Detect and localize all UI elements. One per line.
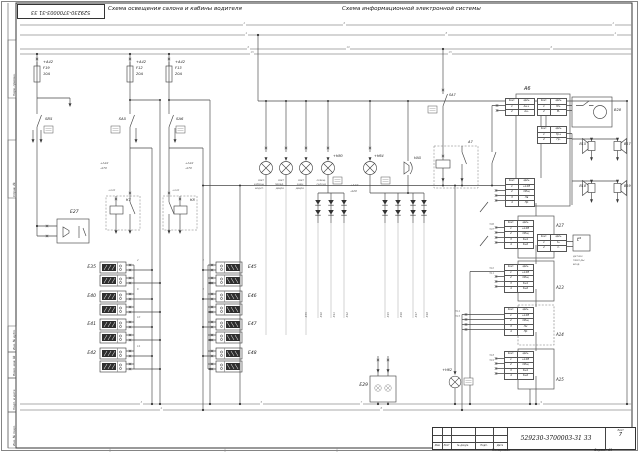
wire-num: 507 bbox=[489, 229, 494, 231]
stub-num: 4 bbox=[202, 260, 204, 263]
stamp-text: 529230-3700003-31 33 bbox=[31, 9, 90, 15]
wire-left-1: +А42 bbox=[100, 162, 108, 165]
lamp4-note-2: салона bbox=[316, 184, 326, 187]
margin-field: Взам. инв. № bbox=[13, 356, 16, 376]
wire-num: 506 bbox=[489, 224, 494, 226]
unit-e29 bbox=[370, 356, 396, 404]
module-a15-label: А15 bbox=[556, 378, 564, 382]
fuse-f12-name: F12 bbox=[136, 67, 143, 71]
bus-num: 4 bbox=[160, 408, 163, 411]
wire-left-2: -А70 bbox=[100, 167, 107, 170]
lamp-h62-label: +Н62 bbox=[442, 369, 452, 372]
module-a14-label: А14 bbox=[556, 333, 564, 337]
bus-num: 6 bbox=[247, 47, 250, 50]
module-e35-label: Е35 bbox=[87, 266, 96, 271]
module-e42-label: Е42 bbox=[87, 352, 96, 357]
speaker-b19-label: В19 bbox=[624, 185, 631, 188]
switch-sa6-label: SA6 bbox=[176, 117, 183, 121]
wire-e48: -Е48 bbox=[427, 312, 430, 318]
bus-num: 10 bbox=[346, 47, 350, 50]
unit-e29-label: Е29 bbox=[359, 384, 368, 389]
speakers bbox=[565, 134, 627, 206]
wire-e42: -Е42 bbox=[347, 312, 350, 318]
wire-num: 511 bbox=[489, 273, 494, 275]
module-a6-label: А6 bbox=[524, 87, 531, 92]
format-label: Формат А3 bbox=[594, 448, 612, 452]
relay-k8-wire: +А42 bbox=[172, 190, 179, 193]
fuse-f13-rating: 20А bbox=[175, 73, 182, 77]
bus-num: 8 bbox=[380, 408, 383, 411]
fuse-f12-rating: 20А bbox=[136, 73, 143, 77]
cabin-light-modules-left bbox=[100, 262, 160, 372]
conn-table-a6-t3: Конт.Цепь1Гр+2Гр- bbox=[537, 126, 567, 144]
conn-table-a13-t: Конт.Цепь1+12В2Общ3Кн14Кн2 bbox=[504, 264, 534, 293]
fuse-f13-name: F13 bbox=[175, 67, 182, 71]
bus-num: 15 bbox=[448, 52, 452, 55]
tb-col-list: Лист bbox=[442, 444, 451, 447]
lamp-h62 bbox=[449, 186, 473, 405]
cabin-light-modules-right bbox=[203, 186, 242, 411]
sheet-cell: Лист 7 bbox=[605, 428, 635, 449]
margin-field: Подп. и дата bbox=[13, 390, 16, 410]
indicator-lamps bbox=[260, 101, 391, 335]
stub-num: 8 bbox=[202, 289, 204, 292]
fuse-f19-name: F19 bbox=[43, 67, 50, 71]
doc-number: 529230-3700003-31 33 bbox=[507, 428, 605, 449]
speaker-b18-label: В18 bbox=[579, 185, 586, 188]
schematic-title-left: Схема освещения салона и кабины водителя bbox=[108, 6, 242, 12]
wire-e47: -Е47 bbox=[416, 312, 419, 318]
stub-num: 6 bbox=[137, 289, 139, 292]
margin-field: Справ. № bbox=[13, 182, 16, 197]
conn-table-a6-t2: Конт.Цепь1М+2М- bbox=[537, 98, 567, 116]
wire-right-1: +А42 bbox=[185, 162, 193, 165]
bus-num: 9 bbox=[540, 402, 543, 405]
module-e41-label: Е41 bbox=[87, 323, 96, 328]
unit-e27-label: Е27 bbox=[70, 211, 79, 216]
conn-table-a14-t: Конт.Цепь1+12В2Общ3Лн4Пр bbox=[504, 307, 534, 336]
conn-table-temp-t: Конт.Цепь1t+2t- bbox=[537, 234, 567, 252]
temp-sensor-symbol: t° bbox=[577, 238, 581, 243]
module-e48-label: Е48 bbox=[248, 352, 257, 357]
stub-num: 14 bbox=[137, 346, 140, 349]
unit-e27 bbox=[36, 219, 89, 243]
wire-e46: -Е46 bbox=[401, 312, 404, 318]
diode-group-right bbox=[370, 193, 427, 318]
sheet-number: 7 bbox=[606, 432, 635, 438]
temp-note-3: возд. bbox=[573, 264, 580, 267]
relay-k7-wire: +А42 bbox=[108, 190, 115, 193]
bus-num: 4 bbox=[614, 33, 617, 36]
lamp2-note-3: двери bbox=[276, 188, 284, 191]
schematic-title-right: Схема информационной электронной системы bbox=[342, 6, 481, 12]
speaker-b15-label: В15 bbox=[579, 143, 586, 146]
wire-right-2: -А70 bbox=[185, 167, 192, 170]
bus-num: 5 bbox=[260, 402, 263, 405]
switch-sa5 bbox=[111, 115, 152, 404]
wire-num: 514 bbox=[455, 311, 460, 313]
bus-num: 2 bbox=[612, 23, 615, 26]
bus-num: 15 bbox=[250, 52, 254, 55]
wire-e35: -Е35 bbox=[306, 312, 309, 318]
buzzer-ha5-label: НА5 bbox=[414, 157, 421, 160]
tb-col-izm: Изм. bbox=[433, 444, 442, 447]
margin-field: Инв. № дубл. bbox=[13, 329, 16, 350]
fuse-f13 bbox=[166, 54, 210, 404]
conn-table-a15-t: Конт.Цепь1+12В2Общ3Кн14Кн2 bbox=[504, 351, 534, 380]
bus-num: 2 bbox=[243, 23, 246, 26]
conn-table-a17-t: Конт.Цепь1+12В2Общ3Кн14Кн2 bbox=[504, 220, 534, 249]
title-block: Изм. Лист № докум. Подп. Дата 529230-370… bbox=[432, 427, 636, 450]
wire-num: 519 bbox=[489, 360, 494, 362]
stub-num: 2 bbox=[137, 260, 139, 263]
switch-sb5 bbox=[32, 115, 54, 236]
bus-num: 3 bbox=[140, 402, 143, 405]
conn-table-a6-t1: Конт.Цепь1Ан+2Ан- bbox=[505, 98, 535, 116]
margin-field: Инв. № подл. bbox=[13, 425, 16, 446]
wire-num: 518 bbox=[489, 355, 494, 357]
drawing-frame bbox=[2, 2, 638, 452]
module-e45-label: Е45 bbox=[248, 266, 257, 271]
margin-field: Перв. примен. bbox=[13, 73, 16, 96]
bus-num: 4 bbox=[245, 33, 248, 36]
cabin-feed-wire bbox=[258, 35, 627, 101]
bus-num: 6 bbox=[343, 23, 346, 26]
diode-group-left bbox=[315, 193, 347, 318]
module-a13-label: А13 bbox=[556, 286, 564, 290]
tb-col-podp: Подп. bbox=[475, 444, 493, 447]
wire-e40: -Е40 bbox=[321, 312, 324, 318]
tb-col-docnum: № докум. bbox=[451, 444, 475, 447]
diode-feed-1: +А42 bbox=[350, 184, 358, 187]
module-e46-label: Е46 bbox=[248, 295, 257, 300]
wire-num: 515 bbox=[455, 316, 460, 318]
fuse-f13-feed: +А42 bbox=[175, 61, 185, 65]
switch-sa7 bbox=[428, 49, 448, 160]
device-b28 bbox=[565, 97, 612, 127]
schematic-drawing bbox=[0, 0, 639, 452]
relay-a7-label: А7 bbox=[468, 141, 473, 145]
bus-num: 8 bbox=[445, 33, 448, 36]
switch-sa7-label: SА7 bbox=[449, 94, 456, 97]
buzzer-ha5 bbox=[404, 101, 412, 193]
wire-e45: -Е45 bbox=[388, 312, 391, 318]
lamp-h64-label: +Н64 bbox=[374, 155, 384, 158]
lamp3-note-3: двери bbox=[296, 188, 304, 191]
lamp-h80-label: +Н80 bbox=[333, 155, 343, 158]
fuse-f19-feed: +А42 bbox=[43, 61, 53, 65]
lamp1-note-3: водит. bbox=[255, 188, 264, 191]
relay-a7 bbox=[434, 146, 478, 188]
stub-num: 10 bbox=[137, 317, 140, 320]
switch-sa6 bbox=[169, 115, 203, 196]
module-e47-label: Е47 bbox=[248, 323, 257, 328]
bus-num: 7 bbox=[360, 402, 363, 405]
module-a17-label: А17 bbox=[556, 224, 564, 228]
device-b28-label: В28 bbox=[614, 109, 621, 113]
copied-label: Копировал bbox=[492, 448, 510, 452]
conn-table-a6-t4: Конт.Цепь1+12В2Общ3Лв4Пр bbox=[505, 178, 535, 207]
bus-num: 6 bbox=[550, 47, 553, 50]
relay-k7-label: К7 bbox=[126, 199, 131, 203]
relay-k8-label: К8 bbox=[190, 199, 195, 203]
switch-sa5-label: SA5 bbox=[119, 117, 126, 121]
switch-sb5-label: SB5 bbox=[45, 117, 52, 121]
fuse-f19-rating: 10А bbox=[43, 73, 50, 77]
tb-col-data: Дата bbox=[493, 444, 507, 447]
schematic-page: 529230-3700003-31 33 Схема освещения сал… bbox=[0, 0, 639, 452]
fuse-f12-feed: +А42 bbox=[136, 61, 146, 65]
wire-num: 510 bbox=[489, 268, 494, 270]
fuse-f12 bbox=[127, 54, 160, 404]
speaker-b17-label: В17 bbox=[624, 143, 631, 146]
module-e40-label: Е40 bbox=[87, 295, 96, 300]
relay-k7 bbox=[106, 192, 140, 234]
rotated-doc-number-stamp: 529230-3700003-31 33 bbox=[17, 4, 105, 19]
diode-feed-2: -А20 bbox=[350, 190, 357, 193]
wire-e41: -Е41 bbox=[334, 312, 337, 318]
